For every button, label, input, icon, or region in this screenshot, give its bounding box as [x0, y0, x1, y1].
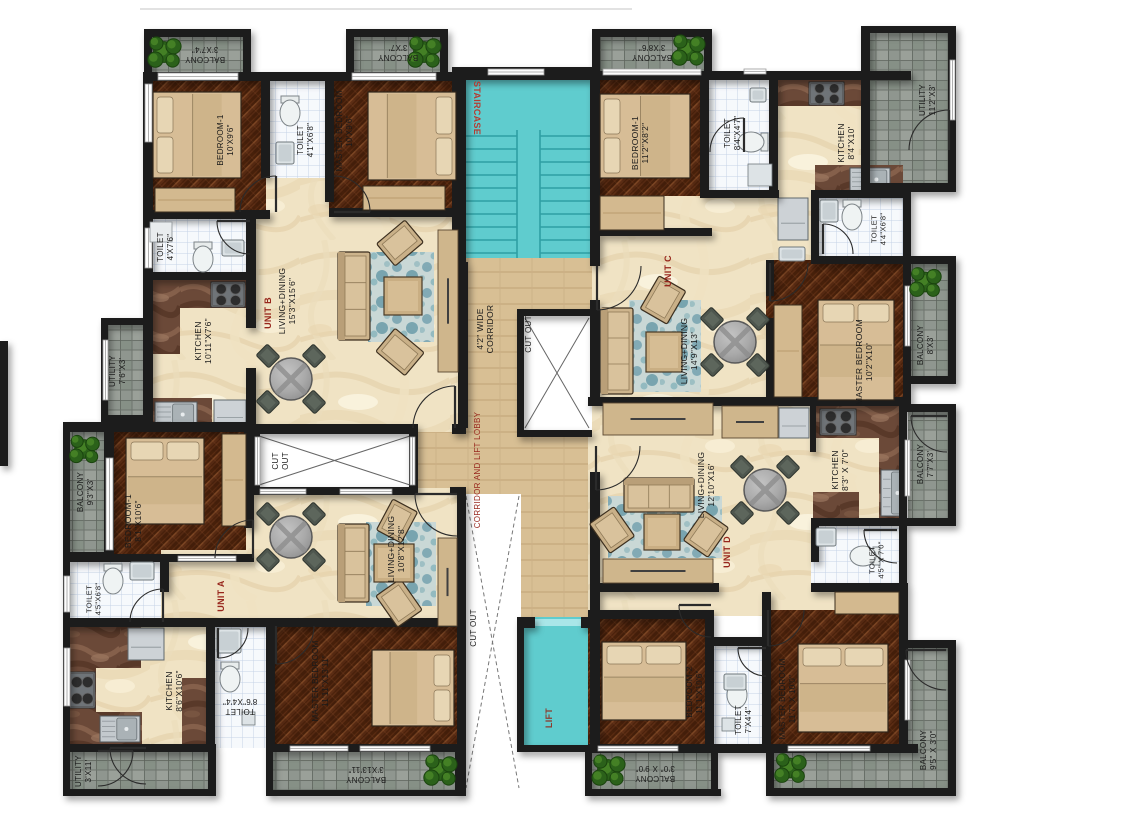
svg-text:KITCHEN8'3" X 7'0": KITCHEN8'3" X 7'0": [830, 449, 850, 491]
svg-text:UNIT C: UNIT C: [663, 255, 673, 287]
svg-text:UNIT A: UNIT A: [216, 580, 226, 612]
svg-text:STAIRCASE: STAIRCASE: [472, 81, 482, 135]
svg-text:KITCHEN10'11"X7'6": KITCHEN10'11"X7'6": [193, 318, 213, 364]
svg-text:TOILET4'X7'6": TOILET4'X7'6": [156, 232, 175, 262]
svg-text:UNIT B: UNIT B: [263, 297, 273, 329]
svg-text:UNIT D: UNIT D: [722, 536, 732, 568]
svg-text:BALCONY3'0" X 9'0": BALCONY3'0" X 9'0": [634, 764, 675, 783]
svg-text:TOILET7'X4'4": TOILET7'X4'4": [734, 705, 753, 735]
svg-text:LIVING+DINING15'3"X15'6": LIVING+DINING15'3"X15'6": [277, 268, 297, 334]
svg-text:LIFT: LIFT: [544, 708, 554, 728]
svg-text:BEDROOM-111'2"X8'2": BEDROOM-111'2"X8'2": [630, 116, 650, 170]
svg-text:KITCHEN8'6"X10'6": KITCHEN8'6"X10'6": [164, 670, 184, 712]
svg-text:TOILET4'4"X6'8": TOILET4'4"X6'8": [870, 213, 888, 246]
svg-text:CORRIDOR AND LIFT LOBBY: CORRIDOR AND LIFT LOBBY: [473, 411, 482, 528]
svg-text:TOILET8'6"X4'4": TOILET8'6"X4'4": [223, 697, 258, 716]
svg-text:CUT OUT: CUT OUT: [524, 315, 533, 353]
svg-text:4'2" WIDECORRIDOR: 4'2" WIDECORRIDOR: [475, 305, 495, 354]
svg-text:BEDROOM-18'1"X10'6": BEDROOM-18'1"X10'6": [123, 494, 143, 548]
svg-text:CUT OUT: CUT OUT: [469, 609, 478, 647]
svg-text:TOILET8'4"X4'7": TOILET8'4"X4'7": [723, 116, 742, 151]
svg-text:UTILITY11'2"X3': UTILITY11'2"X3': [918, 84, 937, 116]
svg-text:KITCHEN8'4"X10': KITCHEN8'4"X10': [836, 123, 856, 162]
svg-text:BALCONY9'5" X 3'0": BALCONY9'5" X 3'0": [919, 729, 938, 770]
svg-text:TOILET4'5"X6'8": TOILET4'5"X6'8": [85, 583, 103, 616]
svg-text:LIVING+DINING10'8"X12'8": LIVING+DINING10'8"X12'8": [386, 516, 406, 582]
svg-text:TOILET4'1"X6'8": TOILET4'1"X6'8": [296, 123, 315, 158]
svg-text:BEDROOM-211'1"X10'6": BEDROOM-211'1"X10'6": [685, 666, 704, 717]
svg-text:CUTOUT: CUTOUT: [271, 452, 290, 470]
svg-text:BALCONY3'X13'11": BALCONY3'X13'11": [345, 765, 386, 784]
svg-text:TOILET4'5" X 7'0": TOILET4'5" X 7'0": [868, 541, 886, 578]
svg-text:UTILITY7'6"X3': UTILITY7'6"X3': [108, 355, 127, 387]
svg-text:UTILITY3'X11': UTILITY3'X11': [74, 755, 93, 787]
